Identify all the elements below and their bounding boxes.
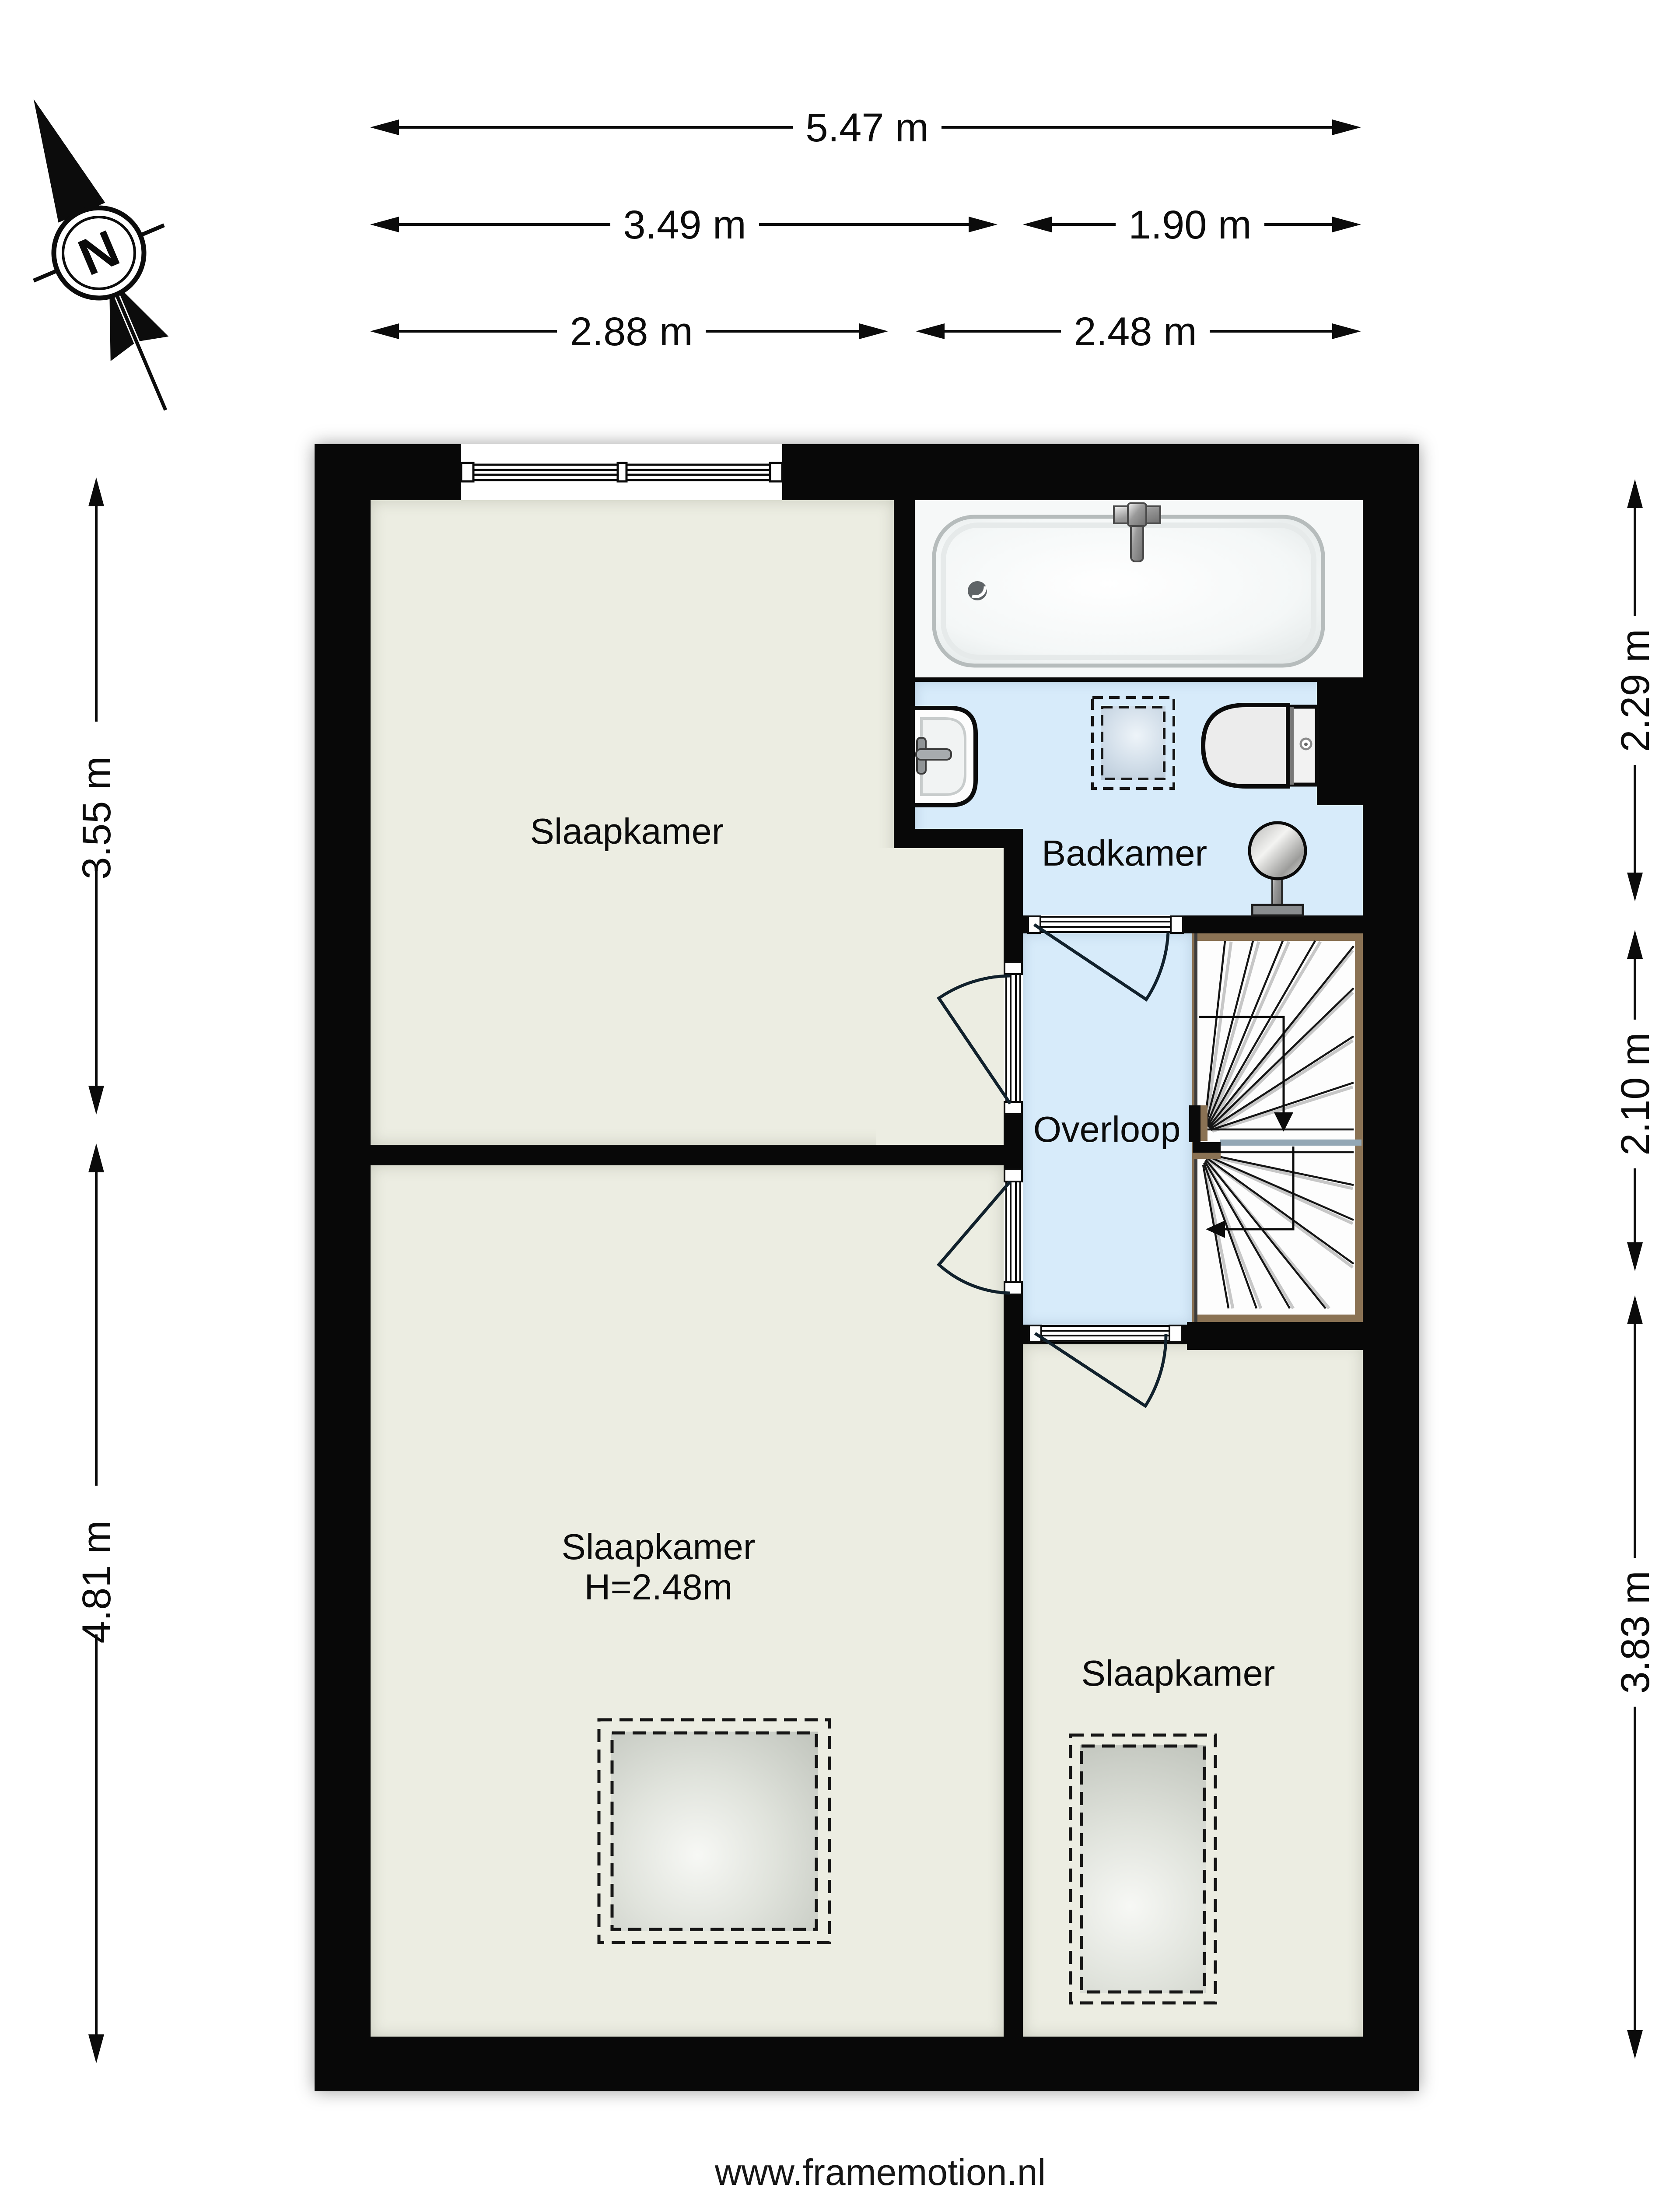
svg-text:Slaapkamer: Slaapkamer	[1081, 1653, 1275, 1694]
svg-text:5.47 m: 5.47 m	[805, 105, 928, 150]
svg-text:2.48 m: 2.48 m	[1074, 309, 1197, 354]
svg-text:3.83 m: 3.83 m	[1613, 1571, 1658, 1694]
svg-text:4.81 m: 4.81 m	[74, 1520, 119, 1643]
svg-text:2.10 m: 2.10 m	[1613, 1032, 1658, 1155]
svg-text:H=2.48m: H=2.48m	[584, 1567, 732, 1607]
svg-text:www.framemotion.nl: www.framemotion.nl	[714, 2152, 1046, 2188]
svg-text:Slaapkamer: Slaapkamer	[562, 1526, 756, 1567]
svg-text:2.88 m: 2.88 m	[570, 309, 693, 354]
svg-text:3.49 m: 3.49 m	[623, 203, 746, 247]
svg-text:Badkamer: Badkamer	[1042, 833, 1207, 873]
svg-text:Overloop: Overloop	[1033, 1109, 1181, 1150]
svg-text:3.55 m: 3.55 m	[74, 756, 119, 879]
svg-text:2.29 m: 2.29 m	[1613, 629, 1658, 752]
svg-text:Slaapkamer: Slaapkamer	[530, 811, 724, 852]
svg-text:1.90 m: 1.90 m	[1128, 203, 1251, 247]
